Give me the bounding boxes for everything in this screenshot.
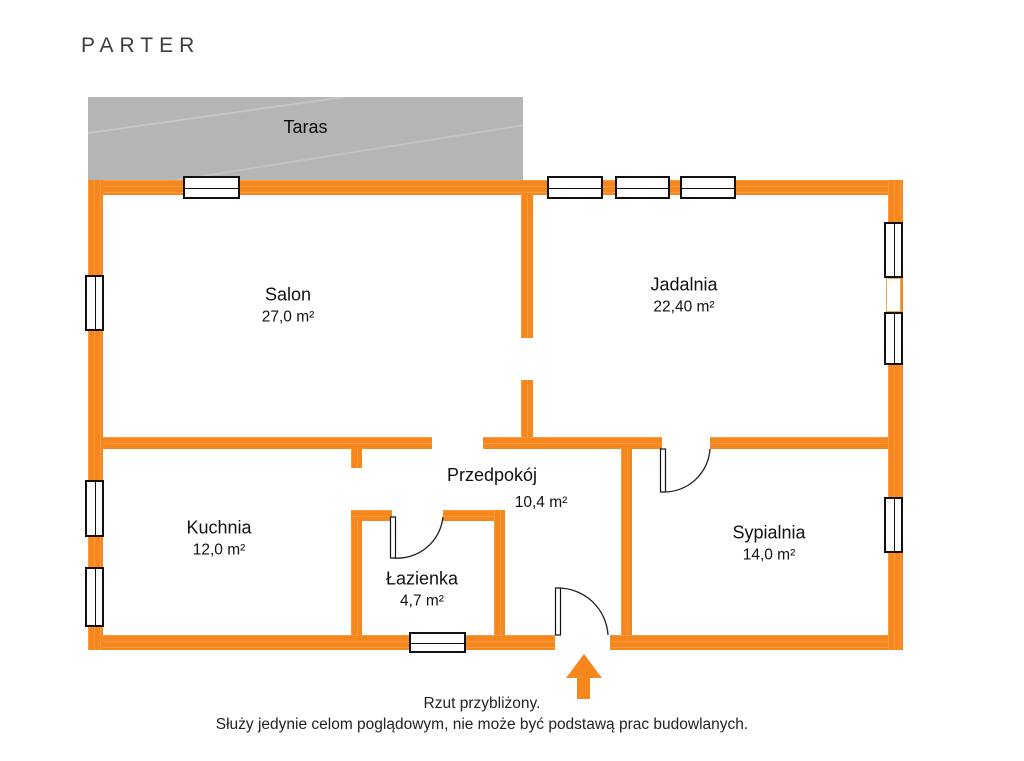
window-sypialnia-right xyxy=(884,497,903,553)
terrace-area: Taras xyxy=(88,97,523,180)
room-name: Kuchnia xyxy=(186,518,251,540)
room-label-lazienka: Łazienka 4,7 m² xyxy=(386,569,458,612)
lazienka-door-arc xyxy=(393,517,443,558)
room-area: 27,0 m² xyxy=(262,309,315,328)
room-area: 12,0 m² xyxy=(186,542,251,561)
wall-salon-kuchnia xyxy=(103,437,432,449)
room-area: 14,0 m² xyxy=(732,547,805,566)
wall-lazienka-top-left xyxy=(351,510,392,521)
window-salon-top xyxy=(183,176,240,199)
room-label-sypialnia: Sypialnia 14,0 m² xyxy=(732,523,805,566)
room-name: Jadalnia xyxy=(650,275,717,297)
room-area: 10,4 m² xyxy=(496,494,586,513)
disclaimer-line-1: Rzut przybliżony. xyxy=(216,694,748,715)
window-kuchnia-left-1 xyxy=(85,480,104,537)
floor-plan-canvas: PARTER Taras Sa xyxy=(0,0,1024,761)
wall-przedpokoj-top xyxy=(483,437,662,449)
window-kuchnia-left-2 xyxy=(85,567,104,627)
room-label-przedpokoj: Przedpokój 10,4 m² xyxy=(447,465,537,513)
room-label-kuchnia: Kuchnia 12,0 m² xyxy=(186,518,251,561)
wall-salon-jadalnia-upper xyxy=(521,195,533,338)
lazienka-door-leaf xyxy=(391,517,396,558)
wall-jadalnia-sypialnia xyxy=(710,437,888,449)
room-name: Łazienka xyxy=(386,569,458,591)
window-jadalnia-top-3 xyxy=(680,176,736,199)
window-jadalnia-right-1 xyxy=(884,222,903,278)
sypialnia-door-leaf xyxy=(661,449,666,492)
window-salon-left xyxy=(85,275,104,331)
terrace-label: Taras xyxy=(283,117,327,138)
window-jadalnia-top-1 xyxy=(547,176,603,199)
wall-lazienka-right xyxy=(494,510,505,635)
window-jadalnia-right-2 xyxy=(884,312,903,365)
disclaimer-line-2: Służy jedynie celom poglądowym, nie może… xyxy=(216,715,748,736)
sypialnia-door-arc xyxy=(663,449,710,492)
room-area: 22,40 m² xyxy=(650,299,717,318)
room-label-salon: Salon 27,0 m² xyxy=(262,285,315,328)
room-name: Salon xyxy=(262,285,315,307)
room-name: Przedpokój xyxy=(447,465,537,487)
window-jadalnia-top-2 xyxy=(615,176,670,199)
entrance-door-arc xyxy=(558,588,608,635)
entrance-door-leaf xyxy=(556,588,561,635)
page-title: PARTER xyxy=(81,34,200,58)
wall-lazienka-left xyxy=(351,510,362,635)
wall-przedpokoj-sypialnia xyxy=(621,448,632,635)
window-mullion xyxy=(886,278,901,312)
wall-exterior-bottom-left xyxy=(88,635,555,650)
window-lazienka-bottom xyxy=(409,632,466,653)
wall-kuchnia-przedpokoj-stub xyxy=(351,448,362,468)
disclaimer: Rzut przybliżony. Służy jedynie celom po… xyxy=(216,694,748,736)
room-label-jadalnia: Jadalnia 22,40 m² xyxy=(650,275,717,318)
room-area: 4,7 m² xyxy=(386,593,458,612)
wall-exterior-bottom-right xyxy=(610,635,903,650)
room-name: Sypialnia xyxy=(732,523,805,545)
